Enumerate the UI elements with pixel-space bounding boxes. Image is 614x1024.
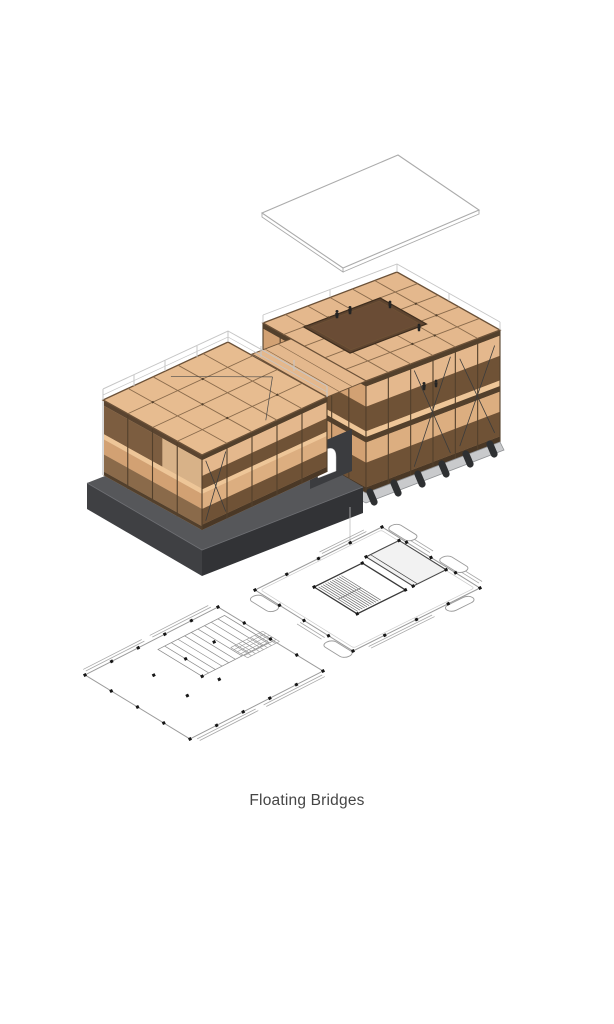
lower-floor-plan [79, 602, 331, 742]
roof-plane-top [262, 155, 479, 268]
low-outline [85, 607, 323, 739]
caption: Floating Bridges [0, 792, 614, 810]
person [417, 324, 420, 332]
architectural-diagram: Floating Bridges [0, 0, 614, 1024]
person [348, 306, 352, 314]
person [422, 382, 426, 390]
diagram-canvas [0, 0, 614, 1024]
roof-plane [262, 155, 479, 272]
person [388, 301, 391, 309]
person [434, 380, 437, 388]
person [335, 310, 339, 318]
up-outline [255, 527, 480, 651]
